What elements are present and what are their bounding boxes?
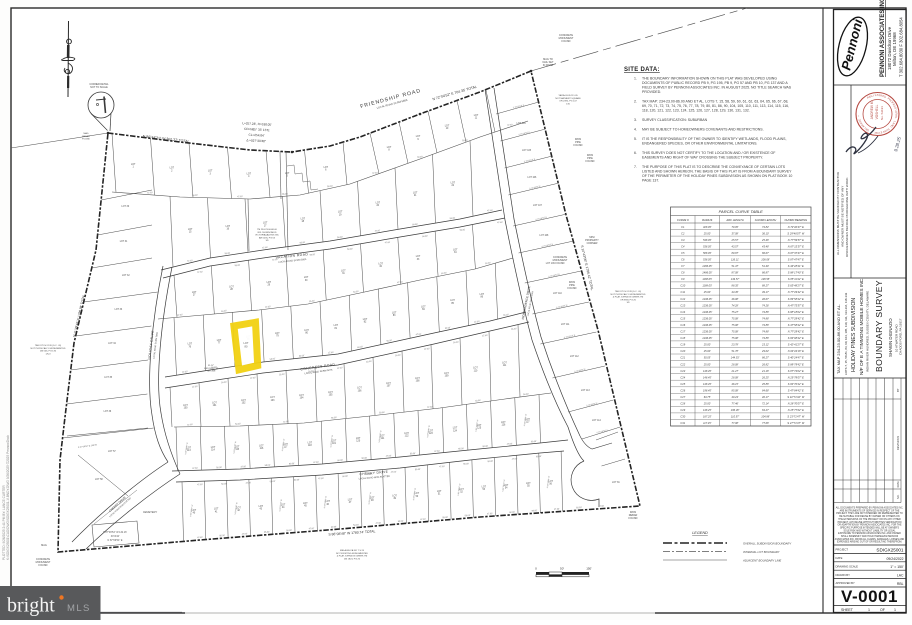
svg-text:N 77°59'57" E: N 77°59'57" E (788, 238, 804, 242)
svg-text:74.88': 74.88' (762, 323, 769, 327)
svg-text:09/24/2022: 09/24/2022 (887, 557, 904, 561)
svg-text:C16: C16 (680, 323, 685, 327)
svg-text:60.00': 60.00' (342, 476, 348, 478)
svg-text:47.60': 47.60' (372, 172, 378, 174)
svg-text:S 88°17'40" E: S 88°17'40" E (788, 271, 804, 275)
svg-text:N/F CHORNOMUD: N/F CHORNOMUD (258, 232, 277, 234)
svg-text:S 84°70'42" E: S 84°70'42" E (788, 382, 804, 386)
svg-text:1236.05': 1236.05' (702, 330, 712, 334)
svg-text:CHORD LENGTH: CHORD LENGTH (755, 218, 777, 222)
svg-text:NOT EXISTING MONUMENTED: NOT EXISTING MONUMENTED (336, 553, 368, 555)
svg-text:SURVEY CLASSIFICATION: SUBURBA: SURVEY CLASSIFICATION: SUBURBAN (642, 118, 708, 122)
svg-text:REVISIONS: REVISIONS (896, 436, 900, 450)
svg-text:C9: C9 (681, 277, 685, 281)
svg-text:BOUNDARY SURVEY: BOUNDARY SURVEY (874, 280, 884, 372)
svg-text:N 25°79'07" E: N 25°79'07" E (788, 375, 804, 379)
svg-text:50.00': 50.00' (410, 453, 416, 455)
svg-text:148.45': 148.45' (703, 375, 712, 379)
svg-text:S 63°48'27" E: S 63°48'27" E (788, 284, 804, 288)
svg-text:LOT 111: LOT 111 (561, 324, 570, 326)
svg-text:69, 70, 71, 72, 73, 74, 75, 76: 69, 70, 71, 72, 73, 74, 75, 76, 77, 78, … (642, 104, 789, 108)
svg-text:OR 2392, PG 147: OR 2392, PG 147 (559, 101, 577, 103)
svg-text:DATE: DATE (897, 481, 900, 488)
svg-text:47.60': 47.60' (420, 519, 426, 521)
svg-text:C22: C22 (680, 362, 685, 366)
svg-text:43.45': 43.45' (732, 290, 739, 294)
svg-text:C7: C7 (681, 264, 685, 268)
svg-text:FOUND: FOUND (39, 564, 48, 567)
svg-text:50.00': 50.00' (488, 461, 494, 463)
svg-text:77.08': 77.08' (732, 421, 739, 425)
svg-text:C10: C10 (680, 284, 685, 288)
svg-text:84.68': 84.68' (762, 389, 769, 393)
svg-text:bright: bright (7, 595, 55, 617)
svg-text:30' R/W: 30' R/W (111, 535, 120, 538)
svg-text:AR 6235, PG 63: AR 6235, PG 63 (259, 236, 276, 239)
svg-text:S 29°46'07" W: S 29°46'07" W (787, 231, 804, 235)
svg-text:37.08': 37.08' (732, 231, 739, 235)
svg-text:TAX DITCH #128 (S.C. #6): TAX DITCH #128 (S.C. #6) (615, 290, 641, 293)
svg-text:& PLAT JOHNSON CREEK TM: & PLAT JOHNSON CREEK TM (613, 296, 644, 299)
svg-text:EXPOSURE TO PENNONI ASSOCIATES: EXPOSURE TO PENNONI ASSOCIATES INC. AND … (838, 532, 901, 535)
svg-text:C30: C30 (680, 415, 685, 419)
svg-text:SOLE RISK AND WITHOUT LIABILIT: SOLE RISK AND WITHOUT LIABILITY OR LEGAL (844, 529, 897, 532)
svg-text:CHADDS FORD, PA 19317: CHADDS FORD, PA 19317 (899, 318, 903, 355)
svg-text:K:\SDIGX25001\CAD\DWG\SDIGX250: K:\SDIGX25001\CAD\DWG\SDIGX25001-V-BNDY.… (6, 435, 10, 560)
svg-text:CURVE #: CURVE # (677, 218, 689, 222)
svg-text:FOUND: FOUND (586, 160, 595, 163)
svg-text:CEMETERY: CEMETERY (143, 510, 158, 514)
svg-text:RBL: RBL (897, 582, 904, 586)
svg-text:C3: C3 (681, 238, 685, 242)
svg-text:89.87': 89.87' (732, 251, 739, 255)
svg-text:139.57': 139.57' (731, 277, 740, 281)
svg-text:S 89°58'42" E: S 89°58'42" E (788, 297, 804, 301)
svg-text:No. S1191: No. S1191 (880, 106, 884, 120)
svg-text:75.08': 75.08' (732, 330, 739, 334)
svg-text:ASSOCIATES INC. FROM ALL CLAIM: ASSOCIATES INC. FROM ALL CLAIMS, DAMAGES… (835, 538, 905, 541)
svg-text:TAX/A.03.05 111.05: TAX/A.03.05 111.05 (558, 94, 578, 97)
svg-text:C12: C12 (680, 297, 685, 301)
svg-text:DB 506, PG 136: DB 506, PG 136 (40, 351, 57, 353)
svg-text:V-0001: V-0001 (841, 587, 898, 606)
svg-text:86.87': 86.87' (762, 271, 769, 275)
svg-text:SPECIFIC PURPOSE INTENDED WILL: SPECIFIC PURPOSE INTENDED WILL BE AT OWN… (840, 526, 900, 529)
svg-text:55.00': 55.00' (265, 465, 271, 467)
svg-text:THE PURPOSE OF THIS PLAT IS TO: THE PURPOSE OF THIS PLAT IS TO DESCRIBE … (642, 165, 786, 169)
svg-text:538.05': 538.05' (703, 238, 712, 242)
svg-text:77.08': 77.08' (762, 421, 769, 425)
svg-text:75.27': 75.27' (732, 310, 739, 314)
svg-text:N 67°37'47" E: N 67°37'47" E (788, 251, 804, 255)
svg-text:PROJECT: PROJECT (836, 548, 849, 552)
svg-text:55.00': 55.00' (282, 193, 288, 195)
svg-text:25.48': 25.48' (761, 238, 769, 242)
svg-text:N 73°20'47" E: N 73°20'47" E (788, 225, 804, 229)
svg-text:C28: C28 (680, 402, 685, 406)
svg-text:INDIAN RIVER HUNDRED, SUSSEX C: INDIAN RIVER HUNDRED, SUSSEX COUNTY, DEL… (866, 291, 870, 372)
svg-text:1236.05': 1236.05' (702, 303, 712, 307)
svg-text:74.88': 74.88' (762, 310, 769, 314)
svg-text:C17: C17 (680, 330, 685, 334)
svg-text:NOT TO SCALE: NOT TO SCALE (90, 86, 108, 89)
svg-text:51.40': 51.40' (762, 264, 769, 268)
svg-text:186.38': 186.38' (731, 408, 740, 412)
svg-text:118, 120, 121, 122, 123, 124,: 118, 120, 121, 122, 123, 124, 125, 126, … (642, 109, 750, 113)
svg-text:50.00': 50.00' (532, 510, 538, 512)
svg-text:47.60': 47.60' (439, 466, 445, 468)
svg-text:DRAWN BY: DRAWN BY (836, 573, 851, 577)
svg-text:47.60': 47.60' (147, 192, 153, 194)
svg-text:47.60': 47.60' (376, 522, 382, 524)
svg-text:TIE LINE: TIE LINE (207, 371, 216, 373)
svg-text:SHALL INDEMNIFY AND HOLD HARML: SHALL INDEMNIFY AND HOLD HARMLESS PENNON… (841, 535, 899, 538)
svg-text:25.00': 25.00' (703, 402, 711, 406)
svg-text:C6: C6 (681, 258, 685, 262)
svg-text:LOT 32: LOT 32 (122, 275, 130, 277)
svg-text:FOUND: FOUND (574, 144, 583, 147)
svg-text:75.08': 75.08' (732, 316, 739, 320)
svg-text:50.00': 50.00' (398, 521, 404, 523)
svg-text:39.17': 39.17' (762, 290, 769, 294)
svg-text:TAX MAP: 234-23.00-86.00 AND E: TAX MAP: 234-23.00-86.00 AND ET AL. LOTS… (642, 100, 788, 104)
svg-text:C20: C20 (680, 349, 685, 353)
svg-text:50.00': 50.00' (192, 195, 198, 197)
svg-text:C13: C13 (680, 303, 685, 307)
svg-text:55.00': 55.00' (264, 531, 270, 533)
svg-text:OR 96W, PG 26: OR 96W, PG 26 (620, 299, 636, 301)
svg-text:29.04': 29.04' (761, 349, 769, 353)
svg-text:1236.05': 1236.05' (702, 336, 712, 340)
svg-text:MAG: MAG (41, 544, 47, 547)
svg-text:50.00': 50.00' (289, 463, 295, 465)
svg-text:50.00': 50.00' (219, 535, 225, 537)
svg-text:40.17': 40.17' (762, 395, 769, 399)
svg-text:104.88': 104.88' (761, 415, 770, 419)
svg-text:OVERALL SUBDIVISION BOUNDARY: OVERALL SUBDIVISION BOUNDARY (743, 542, 792, 546)
svg-text:PARCEL CURVE TABLE: PARCEL CURVE TABLE (719, 209, 763, 214)
svg-text:THE EXTENSIONS OF THE PROJECT: THE EXTENSIONS OF THE PROJECT OR ON ANY … (838, 518, 901, 521)
svg-text:51.47': 51.47' (732, 264, 739, 268)
svg-text:150': 150' (586, 567, 592, 571)
svg-text:26.82': 26.82' (761, 362, 769, 366)
svg-text:79.05': 79.05' (732, 225, 739, 229)
svg-text:DB 1823, PG 26: DB 1823, PG 26 (344, 558, 361, 560)
svg-text:FOUND: FOUND (568, 287, 577, 290)
svg-text:45.88': 45.88' (762, 382, 769, 386)
svg-text:LOT 33: LOT 33 (115, 309, 123, 311)
svg-text:C1: C1 (681, 225, 685, 229)
svg-text:1188.05': 1188.05' (702, 277, 712, 281)
svg-text:47.60': 47.60' (313, 462, 319, 464)
svg-text:S 47°84'42" E: S 47°84'42" E (788, 389, 804, 393)
svg-text:1236.05': 1236.05' (702, 297, 712, 301)
svg-text:LOT 114: LOT 114 (592, 420, 601, 422)
svg-text:85.08': 85.08' (732, 389, 739, 393)
svg-text:ARC LENGTH: ARC LENGTH (725, 218, 743, 222)
svg-text:NOT PHYSICALLY MONUMENTED: NOT PHYSICALLY MONUMENTED (30, 347, 65, 350)
svg-text:51.57': 51.57' (208, 365, 214, 367)
svg-text:C18: C18 (680, 336, 685, 340)
svg-text:C31: C31 (680, 421, 685, 425)
svg-text:S 87°09'54" W 132.16': S 87°09'54" W 132.16' (103, 531, 127, 534)
svg-text:50.00': 50.00' (362, 457, 368, 459)
svg-text:148.45': 148.45' (703, 369, 712, 373)
svg-text:S 40°24'47" E: S 40°24'47" E (788, 356, 804, 360)
svg-text:N 28°70'07" E: N 28°70'07" E (788, 402, 804, 406)
svg-text:167.25': 167.25' (703, 415, 712, 419)
svg-text:& PLAT JOHNSON CREEK TM: & PLAT JOHNSON CREEK TM (337, 555, 368, 558)
svg-text:50.00': 50.00' (576, 507, 582, 509)
svg-text:FOUND: FOUND (556, 262, 565, 265)
svg-text:1188.05': 1188.05' (702, 284, 712, 288)
svg-text:88.27': 88.27' (762, 284, 769, 288)
svg-text:N 77°29'42" E: N 77°29'42" E (788, 330, 804, 334)
svg-text:88.35': 88.35' (732, 284, 739, 288)
svg-text:REBAR: REBAR (82, 135, 90, 138)
svg-text:148.45': 148.45' (703, 382, 712, 386)
svg-text:25.00': 25.00' (703, 362, 711, 366)
svg-text:LEGEND: LEGEND (692, 531, 708, 535)
svg-text:N 67°13'37" E: N 67°13'37" E (788, 244, 804, 248)
svg-text:84.27': 84.27' (762, 408, 769, 412)
svg-text:46.07': 46.07' (762, 297, 769, 301)
svg-text:C4: C4 (681, 244, 685, 248)
svg-text:CHORD BEARING: CHORD BEARING (784, 218, 807, 222)
svg-text:75.08': 75.08' (732, 336, 739, 340)
svg-text:S 88°18'02" E: S 88°18'02" E (788, 310, 804, 314)
svg-text:144.53': 144.53' (731, 356, 740, 360)
svg-text:538.05': 538.05' (703, 244, 712, 248)
svg-text:60.00': 60.00' (531, 441, 537, 443)
svg-text:DATE: DATE (836, 556, 843, 560)
svg-text:SDIGX25001: SDIGX25001 (876, 547, 904, 552)
svg-text:3.: 3. (634, 118, 637, 122)
svg-text:138.58': 138.58' (761, 277, 770, 281)
svg-text:DOCUMENTS OF PUBLIC RECORD PB: DOCUMENTS OF PUBLIC RECORD PB 9, PG 195,… (642, 81, 788, 85)
svg-text:S 84°08'42" E: S 84°08'42" E (788, 336, 804, 340)
svg-text:21.27': 21.27' (731, 369, 739, 373)
svg-text:588.05': 588.05' (703, 251, 712, 255)
svg-text:86.27': 86.27' (762, 356, 769, 360)
svg-text:OR ADAPTATION BY PENNONI ASSOC: OR ADAPTATION BY PENNONI ASSOCIATES INC.… (838, 524, 902, 527)
svg-text:CL=254.84': CL=254.84' (248, 133, 264, 138)
svg-text:C2: C2 (681, 231, 685, 235)
svg-text:LOT 108: LOT 108 (539, 235, 549, 237)
svg-text:S 85°59'42" W: S 85°59'42" W (204, 368, 219, 370)
svg-text:60.00': 60.00' (337, 460, 343, 462)
svg-text:Milton, DE 19968: Milton, DE 19968 (892, 32, 897, 66)
svg-text:43.48': 43.48' (762, 244, 769, 248)
svg-text:116.11': 116.11' (731, 258, 740, 262)
svg-text:SHEET: SHEET (841, 608, 854, 612)
svg-text:S 23°71'47" W: S 23°71'47" W (787, 415, 804, 419)
svg-text:C25: C25 (680, 382, 685, 386)
svg-text:AND OWNER MUST BE NOTIFIED OF: AND OWNER MUST BE NOTIFIED OF ANY (841, 186, 845, 247)
svg-text:LISTED AND SHOWN HEREON. THE B: LISTED AND SHOWN HEREON. THE BASIS OF TH… (642, 170, 792, 174)
svg-text:23.12': 23.12' (761, 343, 769, 347)
svg-text:LOTS 7, 15, 58-81, 83, 90, 104: LOTS 7, 15, 58-81, 83, 90, 104, 105, 110… (844, 292, 848, 375)
svg-text:ALL DIMENSIONS MUST BE VERIFIE: ALL DIMENSIONS MUST BE VERIFIED BY CONTR… (836, 171, 840, 255)
svg-text:LAC: LAC (897, 574, 904, 578)
svg-text:FOUND: FOUND (629, 517, 638, 520)
svg-text:N/F OF E A TIMMONS MOBILE HOME: N/F OF E A TIMMONS MOBILE HOMES INC. (859, 278, 865, 375)
svg-text:EXPENSES ARISING OUT OF OR RES: EXPENSES ARISING OUT OF OR RESULTING THE… (837, 541, 902, 544)
svg-text:LOT 57: LOT 57 (108, 451, 116, 453)
svg-text:S 43°28'41" E: S 43°28'41" E (788, 264, 804, 268)
svg-text:S 87°74'02" E: S 87°74'02" E (788, 369, 804, 373)
svg-text:LOT 104: LOT 104 (517, 123, 527, 125)
svg-text:TM 234-23.00-86.00: TM 234-23.00-86.00 (257, 229, 278, 231)
svg-text:HOLIDAY PINES SUBDIVISION: HOLIDAY PINES SUBDIVISION (851, 298, 857, 372)
svg-text:72.14': 72.14' (762, 402, 769, 406)
svg-text:TAX MAP 234-23.00-86.00 AND E: TAX MAP 234-23.00-86.00 AND ET AL. (836, 304, 841, 374)
svg-text:LOT 31: LOT 31 (120, 241, 128, 243)
svg-text:1236.05': 1236.05' (702, 316, 712, 320)
svg-text:RADIUS: RADIUS (702, 218, 712, 222)
svg-text:75.08': 75.08' (732, 323, 739, 327)
svg-text:OF THE PERIMETER OF THE HOLID: OF THE PERIMETER OF THE HOLIDAY PINES SU… (642, 174, 792, 178)
svg-text:C21: C21 (680, 356, 685, 360)
svg-text:PROJECT. THEY ARE NOT INTENDED: PROJECT. THEY ARE NOT INTENDED OR REPRES… (836, 512, 903, 515)
svg-text:OF: OF (880, 608, 886, 612)
svg-text:LOT: LOT (243, 341, 248, 345)
svg-text:SHAWN DIGNAZIO: SHAWN DIGNAZIO (888, 318, 893, 357)
svg-text:S 85°11'42" E: S 85°11'42" E (788, 277, 804, 281)
svg-text:4.: 4. (634, 128, 637, 132)
svg-text:1: 1 (868, 608, 870, 612)
svg-text:FOUND: FOUND (562, 40, 571, 43)
svg-text:47.60': 47.60' (237, 196, 243, 198)
svg-text:C27: C27 (680, 395, 685, 399)
svg-text:C15: C15 (680, 316, 685, 320)
svg-text:MAY BE SUBJECT TO HOMEOWNERS C: MAY BE SUBJECT TO HOMEOWNERS COVENANTS A… (642, 128, 764, 132)
svg-text:NOT MATHER? SQUARE: NOT MATHER? SQUARE (555, 97, 581, 100)
svg-text:63.75': 63.75' (704, 395, 711, 399)
svg-text:N 77°29'42" E: N 77°29'42" E (788, 290, 804, 294)
svg-text:74.84': 74.84' (762, 225, 769, 229)
svg-text:INTERNAL LOT BOUNDARY: INTERNAL LOT BOUNDARY (743, 550, 781, 554)
svg-text:PROJECT. ANY REUSE WITHOUT WRI: PROJECT. ANY REUSE WITHOUT WRITTEN VERIF… (838, 521, 902, 524)
svg-text:40.23': 40.23' (732, 395, 739, 399)
svg-text:APPROVED BY: APPROVED BY (836, 581, 855, 585)
svg-text:C5: C5 (681, 251, 685, 255)
svg-text:26.25': 26.25' (761, 375, 769, 379)
svg-text:CORNER: CORNER (587, 242, 598, 245)
svg-text:1236.05': 1236.05' (702, 310, 712, 314)
svg-text:LOT 35: LOT 35 (104, 377, 112, 379)
svg-text:IN ROAD: IN ROAD (543, 64, 554, 67)
svg-text:47.60': 47.60' (241, 466, 247, 468)
svg-text:28.08': 28.08' (731, 362, 739, 366)
svg-text:LOT 58: LOT 58 (95, 479, 103, 481)
svg-text:PENNONI ASSOCIATES INC.: PENNONI ASSOCIATES INC. (880, 0, 886, 77)
svg-text:LOT 106: LOT 106 (527, 177, 537, 179)
svg-text:43.57': 43.57' (732, 244, 739, 248)
svg-text:25.57': 25.57' (731, 238, 739, 242)
svg-text:50.00': 50.00' (216, 467, 222, 469)
svg-text:NOT PHYSICALLY MONUMENTED: NOT PHYSICALLY MONUMENTED (610, 293, 645, 296)
svg-text:S 42°71'42" W: S 42°71'42" W (787, 395, 804, 399)
svg-text:BY: BY (896, 388, 900, 392)
svg-text:50.00': 50.00' (327, 186, 333, 188)
svg-text:47.60': 47.60' (434, 451, 440, 453)
svg-text:74.26': 74.26' (762, 303, 769, 307)
svg-text:47.60': 47.60' (309, 528, 315, 530)
svg-text:60.00': 60.00' (536, 456, 542, 458)
svg-text:N 87°09'54" E: N 87°09'54" E (108, 539, 123, 542)
svg-text:50.00': 50.00' (465, 515, 471, 517)
svg-text:N 04°24'18" E: N 04°24'18" E (788, 349, 804, 353)
svg-text:117.45': 117.45' (703, 421, 712, 425)
svg-text:5.: 5. (634, 137, 637, 141)
svg-text:LOT 105: LOT 105 (522, 150, 532, 152)
svg-text:THE BOUNDARY INFORMATION SHOWN: THE BOUNDARY INFORMATION SHOWN ON THIS P… (642, 77, 777, 81)
svg-text:C24: C24 (680, 375, 685, 379)
svg-text:6.: 6. (634, 151, 637, 155)
svg-text:1/6-3: 1/6-3 (46, 353, 52, 355)
svg-text:LOT 107: LOT 107 (533, 205, 543, 207)
svg-text:LOT 113: LOT 113 (581, 390, 590, 392)
svg-text:S 89°79'42" E: S 89°79'42" E (788, 362, 804, 366)
svg-text:C23: C23 (680, 369, 685, 373)
svg-text:25.00': 25.00' (703, 231, 711, 235)
svg-text:C19: C19 (680, 343, 685, 347)
svg-text:23.78': 23.78' (731, 343, 739, 347)
svg-text:SITE DATA:: SITE DATA: (624, 67, 660, 73)
svg-text:EASEMENTS AND RIGHT OF WAY CRO: EASEMENTS AND RIGHT OF WAY CROSSING THE … (642, 156, 763, 160)
svg-text:S 47°58'42" E: S 47°58'42" E (788, 323, 804, 327)
svg-text:50': 50' (560, 567, 564, 571)
svg-text:MLS: MLS (67, 603, 91, 614)
svg-text:47.60': 47.60' (487, 513, 493, 515)
svg-text:47.60': 47.60' (554, 508, 560, 510)
svg-text:46.15': 46.15' (732, 382, 739, 386)
svg-text:74.88': 74.88' (762, 330, 769, 334)
svg-text:C8: C8 (681, 271, 685, 275)
svg-text:DISCREPANCIES BEFORE PROCEEDIN: DISCREPANCIES BEFORE PROCEEDING WITH WOR… (845, 177, 849, 257)
svg-text:N 47°73'57" E: N 47°73'57" E (788, 303, 804, 307)
svg-text:LOT 34: LOT 34 (108, 343, 116, 345)
svg-text:108.08': 108.08' (761, 258, 770, 262)
svg-text:55.00': 55.00' (458, 448, 464, 450)
svg-text:50.00': 50.00' (353, 524, 359, 526)
svg-text:46.08': 46.08' (732, 297, 739, 301)
svg-text:DRAWING SCALE: DRAWING SCALE (836, 564, 859, 568)
svg-text:50.00': 50.00' (483, 446, 489, 448)
svg-text:ANDREW M.: ANDREW M. (870, 101, 874, 120)
svg-text:LOT 30: LOT 30 (121, 206, 129, 208)
svg-text:C11: C11 (681, 290, 686, 294)
svg-text:S 27°71'47" W: S 27°71'47" W (787, 421, 804, 425)
svg-text:C26: C26 (680, 389, 685, 393)
svg-text:25.00': 25.00' (703, 349, 711, 353)
svg-text:C29: C29 (680, 408, 685, 412)
svg-text:VICTORIA&ALEXIS INC: VICTORIA&ALEXIS INC (255, 234, 279, 237)
svg-text:538.05': 538.05' (703, 258, 712, 262)
svg-text:60.00': 60.00' (509, 512, 515, 514)
svg-text:28.08': 28.08' (731, 375, 739, 379)
svg-text:148.25': 148.25' (703, 408, 712, 412)
svg-text:S 42°41'27" E: S 42°41'27" E (788, 343, 804, 347)
svg-text:328.05': 328.05' (703, 225, 712, 229)
svg-text:VOSHELL: VOSHELL (875, 104, 879, 119)
svg-text:87.08': 87.08' (732, 271, 739, 275)
svg-text:21.18': 21.18' (761, 369, 769, 373)
svg-text:NO.: NO. (897, 494, 900, 499)
svg-text:LOT 81: LOT 81 (612, 482, 620, 484)
svg-text:ARE INSTRUMENTS OF SERVICE IN: ARE INSTRUMENTS OF SERVICE IN RESPECT OF… (840, 509, 900, 512)
